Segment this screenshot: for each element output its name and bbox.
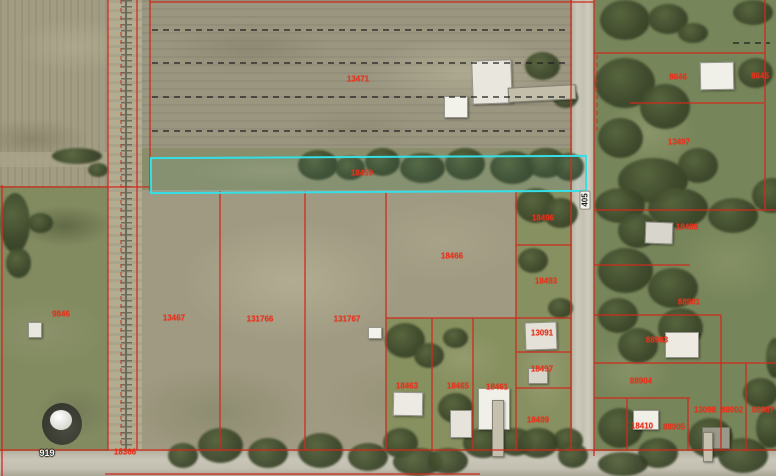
survey-lines-dashed (152, 30, 770, 131)
parcel-lines-red-dashed (121, 0, 597, 450)
parcel-lines-red (0, 0, 776, 476)
parcel-boundary-lines (0, 0, 776, 476)
map-canvas[interactable]: 1347118459134671317661317671846698461836… (0, 0, 776, 476)
selected-parcel-highlight[interactable] (150, 155, 587, 194)
